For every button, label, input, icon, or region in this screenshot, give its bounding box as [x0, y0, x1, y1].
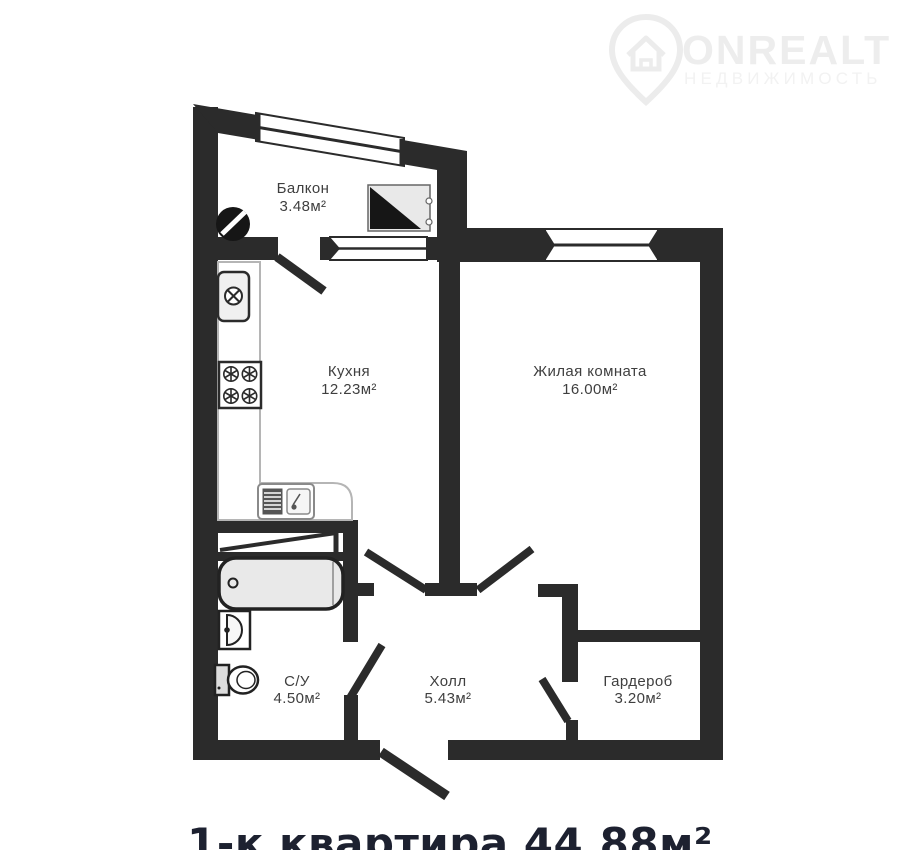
plan-title: 1-к квартира 44.88м² [187, 819, 713, 850]
svg-text:12.23м²: 12.23м² [321, 381, 377, 398]
wall-living-door-stub [538, 584, 578, 597]
room-label-living: Жилая комната 16.00м² [533, 363, 647, 398]
walls [193, 104, 723, 760]
svg-text:Жилая комната: Жилая комната [533, 363, 647, 380]
wall-right-outer [700, 230, 723, 760]
wall-wardrobe-top [578, 630, 700, 642]
wall-bottom-right [448, 740, 723, 760]
svg-text:3.20м²: 3.20м² [615, 690, 662, 707]
wall-bath-stub [353, 583, 374, 596]
svg-text:Гардероб: Гардероб [603, 673, 672, 690]
kitchen-fridge [218, 272, 249, 321]
wall-left-outer [193, 107, 218, 758]
balcony-boiler-icon [216, 207, 250, 241]
room-label-balcony: Балкон 3.48м² [277, 180, 330, 215]
svg-text:Холл: Холл [430, 673, 467, 690]
wall-wardrobe-left [562, 596, 578, 682]
kitchen-stove [219, 362, 261, 408]
wall-window-jamb-left [320, 237, 330, 260]
svg-text:16.00м²: 16.00м² [562, 381, 618, 398]
room-label-hall: Холл 5.43м² [425, 673, 472, 707]
living-door-leaf [478, 549, 532, 590]
wall-bath-right-upper [343, 520, 358, 642]
wall-bath-right-lower [344, 695, 358, 742]
stove-burner [224, 389, 238, 403]
wall-divider-base [425, 583, 477, 596]
watermark-brand: ONREALT [682, 27, 891, 73]
wall-wardrobe-left-jamb [566, 720, 578, 742]
stove-burner [224, 367, 238, 381]
svg-text:С/У: С/У [284, 673, 310, 690]
floor-plan-svg: ONREALT НЕДВИЖИМОСТЬ [0, 0, 900, 850]
watermark-subtitle: НЕДВИЖИМОСТЬ [684, 69, 882, 88]
onrealt-pin-icon [612, 17, 680, 102]
bathtub [219, 558, 343, 609]
living-room-window [545, 229, 658, 261]
svg-text:4.50м²: 4.50м² [274, 690, 321, 707]
toilet [215, 665, 258, 695]
balcony-slant-window [256, 113, 404, 166]
svg-text:3.48м²: 3.48м² [280, 198, 327, 215]
room-label-bathroom: С/У 4.50м² [274, 673, 321, 707]
kitchen-sink [258, 484, 314, 519]
stove-burner [242, 367, 256, 381]
bath-sink [213, 611, 250, 649]
wall-window-jamb-right [427, 237, 439, 260]
bathtub-drain [229, 579, 238, 588]
wall-balcony-bottom [218, 237, 278, 260]
svg-text:Кухня: Кухня [328, 363, 370, 380]
wall-kitchen-living-divider [439, 262, 460, 585]
room-label-kitchen: Кухня 12.23м² [321, 363, 377, 398]
balcony-hatch-window [368, 185, 432, 231]
watermark-logo: ONREALT НЕДВИЖИМОСТЬ [612, 17, 891, 102]
bathroom-fixtures [213, 558, 343, 695]
entrance-door-leaf [381, 752, 447, 796]
balcony-door-leaf [277, 257, 324, 291]
wardrobe-door-leaf [542, 679, 568, 721]
svg-text:5.43м²: 5.43м² [425, 690, 472, 707]
faucet-icon [224, 627, 230, 633]
wall-bottom-left [193, 740, 380, 760]
svg-text:Балкон: Балкон [277, 180, 330, 197]
room-label-wardrobe: Гардероб 3.20м² [603, 673, 672, 707]
kitchen-door-leaf [366, 552, 426, 590]
faucet-icon [291, 504, 296, 509]
balcony-kitchen-window [330, 237, 427, 260]
bathroom-door-leaf [350, 645, 382, 698]
stove-burner [242, 389, 256, 403]
